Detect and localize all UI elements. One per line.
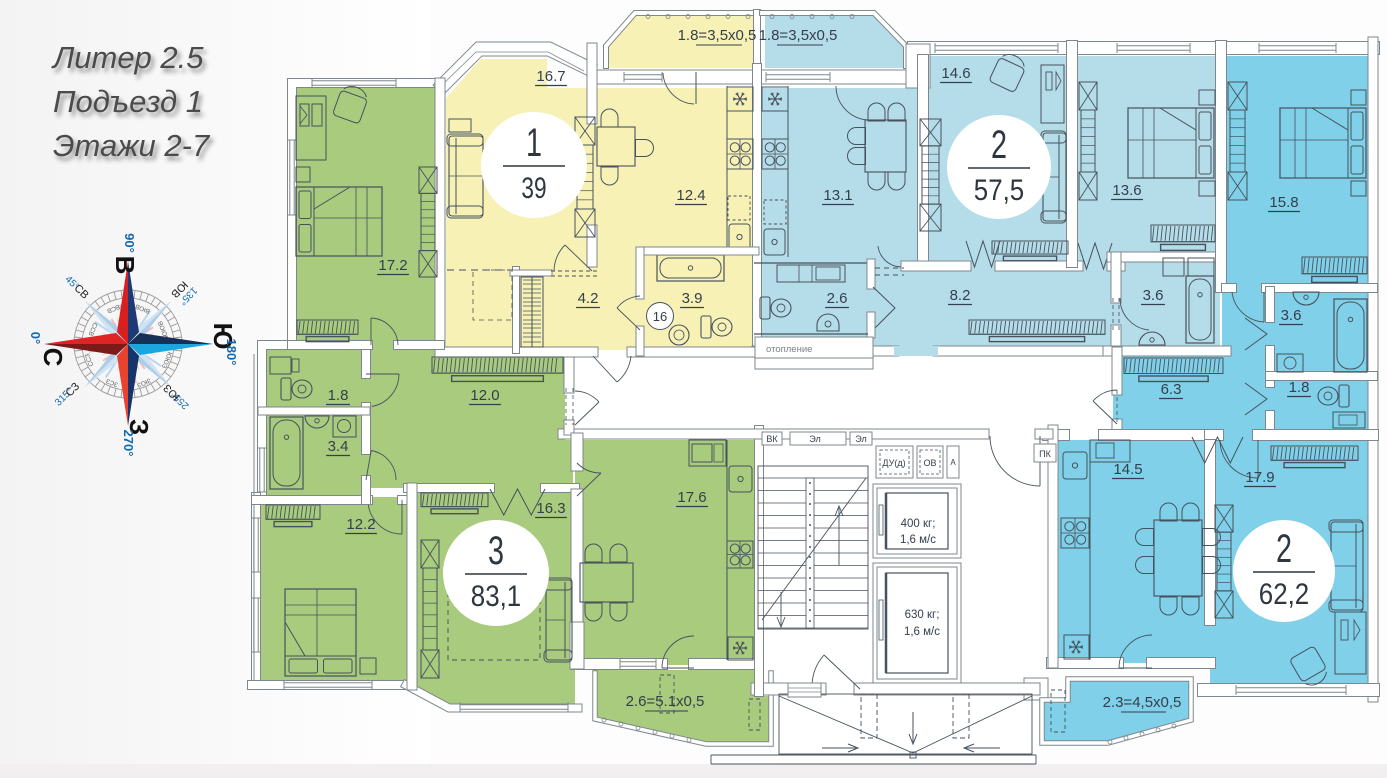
svg-text:17.2: 17.2 xyxy=(378,257,407,274)
svg-text:8.2: 8.2 xyxy=(950,287,971,304)
svg-text:2: 2 xyxy=(991,123,1007,167)
svg-text:39: 39 xyxy=(521,172,546,205)
svg-text:62,2: 62,2 xyxy=(1259,578,1309,611)
svg-text:180°: 180° xyxy=(224,339,239,366)
svg-text:3.4: 3.4 xyxy=(328,438,349,455)
svg-text:Эл: Эл xyxy=(809,434,820,444)
svg-text:16.3: 16.3 xyxy=(536,500,565,517)
svg-text:12.0: 12.0 xyxy=(470,387,499,404)
svg-text:83,1: 83,1 xyxy=(471,580,521,613)
svg-text:ДУ(д): ДУ(д) xyxy=(882,458,905,468)
svg-text:57,5: 57,5 xyxy=(974,174,1024,207)
svg-text:Литер 2.5: Литер 2.5 xyxy=(51,40,204,75)
svg-text:16: 16 xyxy=(653,309,667,324)
svg-text:2.3=4,5х0,5: 2.3=4,5х0,5 xyxy=(1103,694,1182,711)
svg-text:400 кг;: 400 кг; xyxy=(901,518,936,530)
svg-text:6.3: 6.3 xyxy=(1161,381,1182,398)
svg-text:1.8=3,5х0,5: 1.8=3,5х0,5 xyxy=(678,27,757,44)
svg-text:2.6: 2.6 xyxy=(827,290,848,307)
svg-text:С: С xyxy=(38,348,68,367)
svg-text:90°: 90° xyxy=(122,233,137,253)
svg-text:Этажи 2-7: Этажи 2-7 xyxy=(53,128,211,163)
svg-text:270°: 270° xyxy=(121,430,136,457)
svg-text:17.9: 17.9 xyxy=(1245,469,1274,486)
svg-text:1,6 м/с: 1,6 м/с xyxy=(900,534,936,546)
svg-text:3.6: 3.6 xyxy=(1281,307,1302,324)
svg-text:отопление: отопление xyxy=(766,344,812,355)
svg-text:Подъезд 1: Подъезд 1 xyxy=(53,84,203,119)
svg-text:12.4: 12.4 xyxy=(676,187,705,204)
svg-text:1: 1 xyxy=(526,121,542,165)
svg-text:15.8: 15.8 xyxy=(1269,194,1298,211)
svg-text:ОВ: ОВ xyxy=(923,458,936,468)
svg-text:3: 3 xyxy=(488,529,504,573)
svg-text:3.9: 3.9 xyxy=(682,290,703,307)
svg-text:1.8: 1.8 xyxy=(1289,379,1310,396)
svg-text:0°: 0° xyxy=(28,332,43,344)
svg-text:Эл: Эл xyxy=(855,434,866,444)
svg-text:13.1: 13.1 xyxy=(823,187,852,204)
svg-text:А: А xyxy=(950,458,956,467)
svg-text:14.6: 14.6 xyxy=(941,65,970,82)
svg-text:630 кг;: 630 кг; xyxy=(905,609,940,621)
svg-text:1,6 м/с: 1,6 м/с xyxy=(904,626,940,638)
svg-text:12.2: 12.2 xyxy=(346,516,375,533)
svg-text:ПК: ПК xyxy=(1039,449,1051,459)
svg-text:1.8=3,5х0,5: 1.8=3,5х0,5 xyxy=(759,27,838,44)
svg-text:2: 2 xyxy=(1276,527,1292,571)
svg-text:3.6: 3.6 xyxy=(1143,287,1164,304)
svg-text:14.5: 14.5 xyxy=(1113,461,1142,478)
svg-text:2.6=5.1х0,5: 2.6=5.1х0,5 xyxy=(626,693,705,710)
svg-text:1.8: 1.8 xyxy=(328,387,349,404)
svg-text:17.6: 17.6 xyxy=(677,489,706,506)
svg-text:13.6: 13.6 xyxy=(1112,182,1141,199)
svg-text:16.7: 16.7 xyxy=(536,68,565,85)
svg-text:4.2: 4.2 xyxy=(578,290,599,307)
svg-text:ВК: ВК xyxy=(766,434,778,444)
svg-text:В: В xyxy=(110,256,140,275)
